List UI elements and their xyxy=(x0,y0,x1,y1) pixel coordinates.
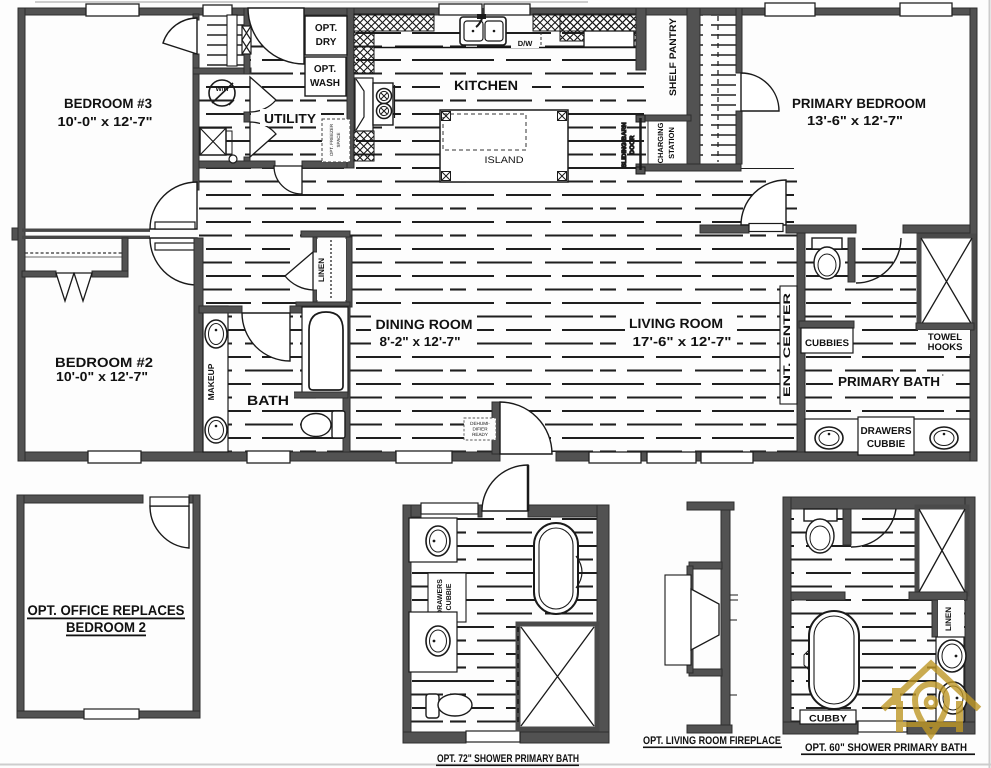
svg-text:WASH: WASH xyxy=(310,78,340,89)
svg-text:OPT. 72" SHOWER PRIMARY BATH: OPT. 72" SHOWER PRIMARY BATH xyxy=(437,753,579,765)
svg-text:CUBBY: CUBBY xyxy=(809,714,848,725)
svg-text:LIVING ROOM: LIVING ROOM xyxy=(629,316,723,331)
svg-text:DIFIER: DIFIER xyxy=(472,427,488,432)
svg-text:LINEN: LINEN xyxy=(317,258,326,282)
svg-text:DEHUMI-: DEHUMI- xyxy=(470,421,490,426)
svg-text:READY: READY xyxy=(472,432,488,437)
svg-text:BEDROOM #3: BEDROOM #3 xyxy=(64,96,152,111)
svg-text:DRY: DRY xyxy=(316,37,337,48)
svg-text:ENT. CENTER: ENT. CENTER xyxy=(782,293,793,397)
svg-text:ISLAND: ISLAND xyxy=(485,155,524,166)
svg-text:OPT. LIVING ROOM FIREPLACE: OPT. LIVING ROOM FIREPLACE xyxy=(643,735,781,747)
svg-text:8'-2" x 12'-7": 8'-2" x 12'-7" xyxy=(380,334,461,349)
svg-text:CUBBIE: CUBBIE xyxy=(446,583,453,610)
svg-text:DRAWERS: DRAWERS xyxy=(860,426,911,437)
svg-text:MAKEUP: MAKEUP xyxy=(206,363,216,400)
svg-text:CUBBIES: CUBBIES xyxy=(805,338,849,349)
svg-text:CHARGING: CHARGING xyxy=(656,122,665,163)
svg-text:STATION: STATION xyxy=(667,127,676,159)
svg-text:PRIMARY BEDROOM: PRIMARY BEDROOM xyxy=(792,96,926,111)
svg-text:10'-0" x 12'-7": 10'-0" x 12'-7" xyxy=(56,369,148,384)
svg-text:BEDROOM 2: BEDROOM 2 xyxy=(66,619,146,635)
svg-text:HOOKS: HOOKS xyxy=(928,342,963,353)
svg-text:BATH: BATH xyxy=(247,393,289,408)
svg-text:17'-6" x 12'-7": 17'-6" x 12'-7" xyxy=(633,334,732,349)
svg-text:SPACE: SPACE xyxy=(336,133,341,148)
svg-text:D/W: D/W xyxy=(518,39,534,48)
svg-text:DOOR: DOOR xyxy=(629,135,636,154)
svg-text:BEDROOM #2: BEDROOM #2 xyxy=(55,355,153,370)
svg-text:SLIDING BARN: SLIDING BARN xyxy=(621,122,628,168)
svg-text:OPT.: OPT. xyxy=(314,64,336,75)
svg-text:OPT.: OPT. xyxy=(315,23,337,34)
svg-text:10'-0" x 12'-7": 10'-0" x 12'-7" xyxy=(58,114,153,129)
svg-text:UTILITY: UTILITY xyxy=(264,111,316,126)
svg-text:13'-6" x 12'-7": 13'-6" x 12'-7" xyxy=(807,113,903,128)
svg-text:W/H: W/H xyxy=(216,86,229,93)
svg-text:DINING ROOM: DINING ROOM xyxy=(376,317,473,332)
svg-text:KITCHEN: KITCHEN xyxy=(454,78,518,93)
svg-text:OPT. FREEZER: OPT. FREEZER xyxy=(329,123,334,156)
svg-text:CUBBIE: CUBBIE xyxy=(867,439,906,450)
svg-text:OPT. OFFICE REPLACES: OPT. OFFICE REPLACES xyxy=(28,602,185,618)
svg-text:PRIMARY BATH: PRIMARY BATH xyxy=(838,374,940,389)
svg-text:SHELF PANTRY: SHELF PANTRY xyxy=(668,17,679,96)
svg-text:OPT. 60" SHOWER PRIMARY BATH: OPT. 60" SHOWER PRIMARY BATH xyxy=(805,742,967,754)
svg-text:DRAWERS: DRAWERS xyxy=(437,579,444,615)
svg-text:LINEN: LINEN xyxy=(944,607,953,631)
